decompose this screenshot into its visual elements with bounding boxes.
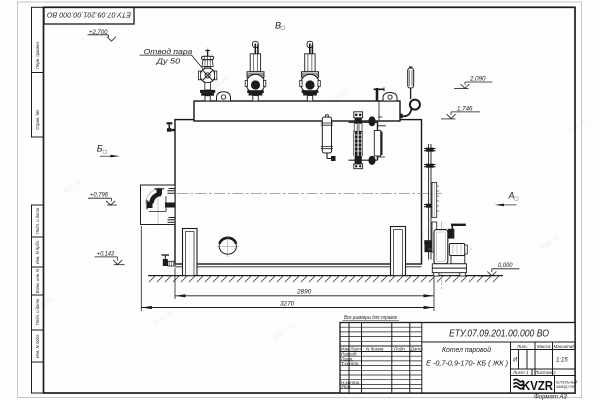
svg-text:Т.контр.: Т.контр. [341, 361, 360, 366]
svg-text:Лист 1: Лист 1 [512, 370, 529, 375]
svg-text:Все размеры для справок: Все размеры для справок [344, 315, 397, 321]
svg-text:0,000: 0,000 [498, 262, 513, 269]
svg-text:Взам. инв. N: Взам. инв. N [35, 268, 40, 293]
svg-text:ЕТУ.07.09.201.00.000 ВО: ЕТУ.07.09.201.00.000 ВО [449, 328, 549, 340]
svg-text:Листов 2: Листов 2 [534, 370, 556, 375]
svg-text:1,746: 1,746 [457, 105, 473, 112]
svg-text:Е -0,7-0,9-170- КБ ( ЖК ): Е -0,7-0,9-170- КБ ( ЖК ) [426, 359, 508, 368]
svg-text:Лит.: Лит. [516, 344, 528, 349]
svg-text:В: В [275, 21, 281, 31]
svg-text:+0,796: +0,796 [90, 191, 108, 198]
svg-text:Б: Б [97, 144, 103, 154]
svg-text:N докум.: N докум. [366, 347, 385, 352]
svg-text:Отвод пара: Отвод пара [144, 47, 193, 56]
svg-text:Масштаб: Масштаб [554, 344, 576, 349]
svg-text:Инв. N дубл.: Инв. N дубл. [35, 240, 40, 264]
svg-text:Подп. и дата: Подп. и дата [35, 207, 40, 234]
svg-text:Дата: Дата [410, 347, 424, 352]
svg-text:И: И [513, 358, 518, 364]
svg-text:КОТЕЛЬНЫЙ: КОТЕЛЬНЫЙ [556, 381, 578, 385]
svg-text:Инв. N подл.: Инв. N подл. [35, 334, 40, 358]
svg-text:KVZR: KVZR [522, 379, 553, 393]
svg-text:2,090: 2,090 [469, 76, 486, 83]
svg-text:Перв. примен.: Перв. примен. [35, 41, 40, 69]
svg-text:1:15: 1:15 [556, 358, 568, 364]
svg-text:3270: 3270 [280, 300, 295, 307]
svg-text:Ду 50: Ду 50 [155, 56, 180, 65]
svg-text:Масса: Масса [537, 344, 551, 349]
svg-text:А: А [508, 191, 515, 201]
svg-text:Справ. No: Справ. No [35, 109, 40, 130]
svg-text:+2,700: +2,700 [89, 29, 108, 36]
svg-text:2890: 2890 [296, 289, 312, 296]
svg-text:Формат А3: Формат А3 [534, 395, 567, 400]
svg-text:Подп.: Подп. [394, 347, 406, 352]
svg-text:ЗАВОД РЭР: ЗАВОД РЭР [556, 385, 576, 389]
svg-text:Котел паровой: Котел паровой [442, 345, 492, 354]
svg-text:Подп. и дата: Подп. и дата [35, 298, 40, 325]
svg-text:ЕТУ.07.09.201.00.000 ВО: ЕТУ.07.09.201.00.000 ВО [46, 11, 131, 18]
svg-text:Утв.: Утв. [341, 384, 351, 389]
